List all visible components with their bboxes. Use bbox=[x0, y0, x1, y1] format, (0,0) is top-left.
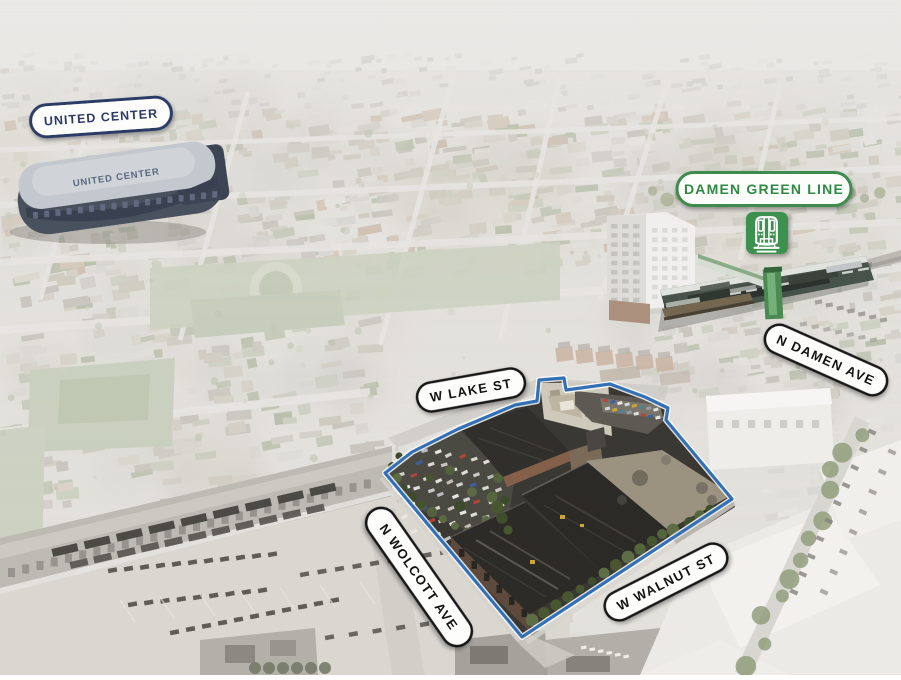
svg-text:DAMEN GREEN LINE: DAMEN GREEN LINE bbox=[684, 181, 844, 197]
